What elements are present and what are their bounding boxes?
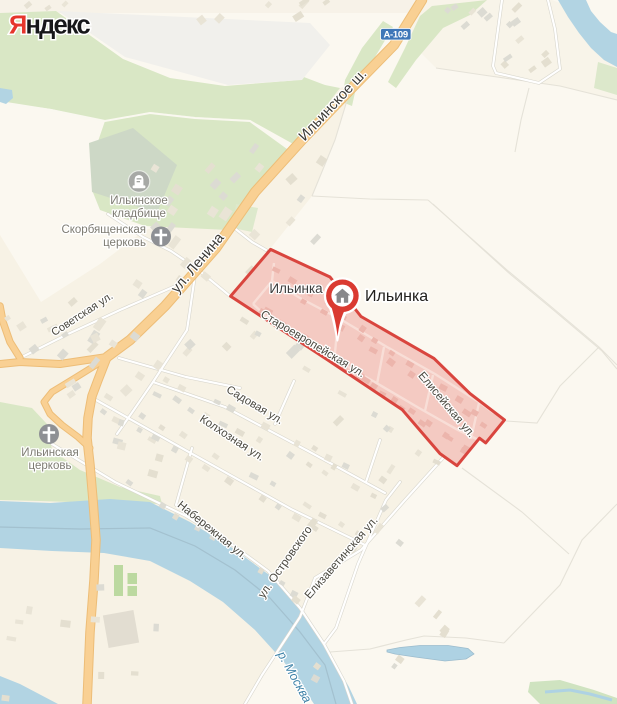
svg-text:Яндекс: Яндекс — [9, 12, 91, 40]
svg-text:Ильинская: Ильинская — [21, 447, 78, 459]
svg-text:Ильинка: Ильинка — [365, 288, 428, 305]
svg-text:церковь: церковь — [29, 460, 72, 472]
svg-text:кладбище: кладбище — [112, 208, 166, 220]
svg-text:Скорбященская: Скорбященская — [61, 224, 146, 236]
svg-text:А-109: А-109 — [384, 30, 408, 41]
svg-text:церковь: церковь — [103, 237, 146, 249]
svg-text:Ильинка: Ильинка — [269, 281, 323, 296]
svg-text:Ильинское: Ильинское — [110, 195, 167, 207]
